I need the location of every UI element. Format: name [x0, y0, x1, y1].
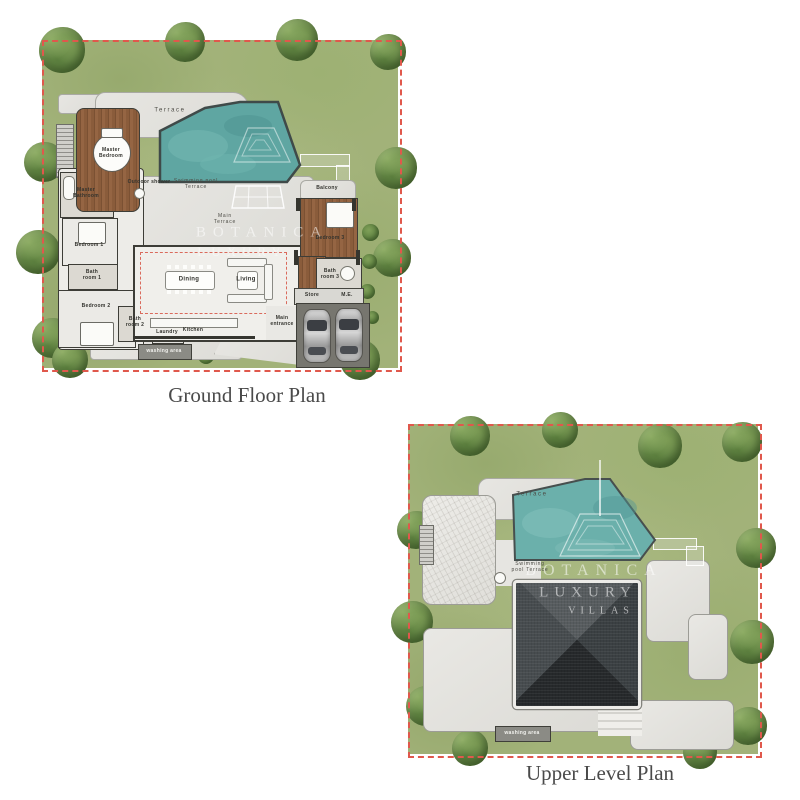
room-label: Swimming pool Terrace	[508, 561, 552, 574]
room-label: washing area	[504, 730, 539, 736]
roof-steps	[598, 706, 642, 736]
swimming-pool	[510, 458, 660, 562]
tree	[722, 422, 762, 462]
exterior-stairs	[419, 525, 434, 565]
tree	[450, 416, 490, 456]
room-label: Terrace	[516, 491, 547, 499]
upper-plan-caption: Upper Level Plan	[480, 761, 720, 786]
roof-slab-right-lower	[688, 614, 728, 680]
watermark-brand: VILLAS	[568, 606, 634, 617]
tree	[736, 528, 776, 568]
tree	[542, 412, 578, 448]
outdoor-shower	[494, 572, 506, 584]
tree	[730, 620, 774, 664]
watermark-brand: LUXURY	[539, 585, 637, 602]
upper-level-plan: BOTANICA LUXURY VILLAS Terrace Swimming …	[0, 0, 800, 800]
garden-path	[686, 546, 704, 566]
roof-slab-bottom-right	[630, 700, 734, 750]
tree	[729, 707, 767, 745]
